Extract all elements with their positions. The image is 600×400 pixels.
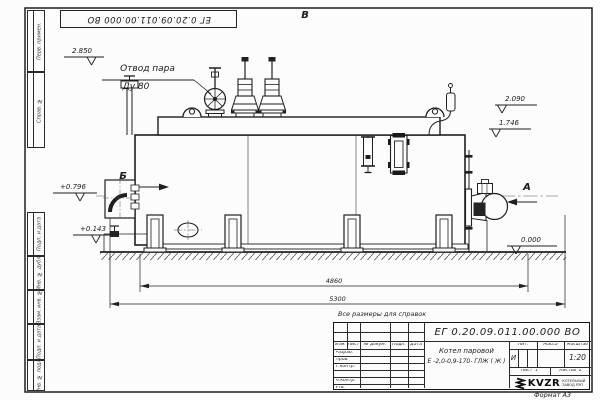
tb-sheets-value: 2 [579, 369, 582, 373]
ground-line [100, 252, 566, 260]
tb-h-podp: Подп. [390, 343, 408, 348]
safety-valve-1 [232, 57, 259, 117]
view-label-a: А [519, 183, 535, 193]
tb-h-mass: Масса [537, 343, 564, 348]
level-0143: +0.143 [71, 226, 115, 234]
margin-col-podp2: Подп. и дата [27, 324, 45, 360]
tb-sheet-label: Лист [521, 369, 532, 373]
top-stamp: ЕГ 0.20.09.011.00.000 ВО [60, 10, 237, 28]
margin-col-inv-podl: Инв. № подл. [27, 360, 45, 391]
tb-lit-value: И [509, 355, 518, 362]
steam-outlet-label-1: Отвод пара [101, 64, 194, 75]
tb-sheet: Лист 1 [509, 369, 550, 374]
margin-col-vzam: Взам. инв. № [27, 290, 45, 324]
view-arrow-a [507, 199, 537, 206]
burner [466, 180, 508, 252]
drawing-sheet: Перв. примен. Справ. № Подп. и дата Инв.… [0, 0, 600, 400]
tb-h-doc: № докум. [360, 343, 390, 348]
reference-note: Все размеры для справок [338, 310, 426, 318]
level-0796: +0.796 [51, 184, 95, 192]
tb-h-lit: Лит. [509, 343, 537, 348]
tb-h-izm: Изм. [334, 343, 347, 348]
boiler-body [135, 135, 468, 249]
margin-col-label: Подп. и дата [34, 325, 45, 359]
margin-col-inv-dubl: Инв. № дубл. [27, 256, 45, 290]
tb-row-utv: Утв. [336, 386, 361, 391]
logo-coil-icon [515, 377, 526, 390]
tb-logo-text: KVZR [528, 378, 560, 389]
margin-col-sprav: Справ. № [27, 72, 45, 148]
margin-col-label: Справ. № [34, 73, 45, 147]
tb-doc-number: ЕГ 0.20.09.011.00.000 ВО [424, 323, 591, 341]
margin-col-label: Инв. № подл. [34, 361, 45, 390]
tb-sheets: Листов 2 [550, 369, 591, 374]
margin-col-label: Перв. примен. [34, 11, 45, 71]
top-stamp-number: ЕГ 0.20.09.011.00.000 ВО [87, 14, 211, 24]
tb-row-prov: Пров. [336, 358, 361, 363]
front-door [103, 178, 139, 220]
format-note: Формат А3 [534, 391, 571, 399]
level-2090: 2.090 [495, 96, 535, 104]
view-label-b: Б [115, 172, 131, 182]
level-2850: 2.850 [62, 48, 102, 56]
margin-col-label: Инв. № дубл. [34, 257, 45, 289]
lifting-lugs [183, 108, 444, 117]
tb-row-tkontr: Т.контр. [336, 365, 361, 370]
level-1746: 1.746 [489, 120, 529, 128]
level-0000: 0.000 [507, 237, 555, 245]
steam-drum [158, 117, 440, 135]
safety-valve-2 [259, 57, 286, 117]
margin-col-label: Взам. инв. № [34, 291, 45, 323]
margin-col-perv: Перв. примен. [27, 10, 45, 72]
tb-product-line1: Котел паровой [424, 348, 509, 355]
view-label-v: В [297, 11, 313, 21]
tb-logo: KVZR КОТЕЛЬНЫЙ ЗАВОД РЭП [509, 375, 591, 391]
tb-h-data: Дата [408, 343, 424, 348]
tb-logo-subtext: КОТЕЛЬНЫЙ ЗАВОД РЭП [562, 379, 585, 387]
tb-product-line2: Е -2,0-0,9-170- ГЛЖ ( Ж ) [424, 359, 509, 365]
tb-scale-value: 1:20 [564, 354, 591, 362]
tb-row-nkontr: Н.контр. [336, 379, 361, 384]
tb-row-razrab: Разраб. [336, 351, 361, 356]
tb-sheet-value: 1 [535, 369, 538, 373]
tb-product: Котел паровой Е -2,0-0,9-170- ГЛЖ ( Ж ) [424, 341, 509, 391]
tb-sheets-label: Листов [559, 369, 576, 373]
margin-col-label: Подп. и дата [34, 213, 45, 255]
dim-4860: 4860 [304, 278, 364, 285]
title-block: Изм. Лист № докум. Подп. Дата Разраб. Пр… [333, 322, 590, 390]
steam-outlet-valve [205, 68, 226, 117]
margin-col-podp1: Подп. и дата [27, 212, 45, 256]
tb-h-list: Лист [347, 343, 360, 348]
tb-logo-sub2: ЗАВОД РЭП [562, 383, 585, 387]
steam-outlet-label-2: Ду 80 [101, 82, 171, 93]
tb-h-scale: Масштаб [564, 343, 591, 348]
dim-5300: 5300 [305, 296, 370, 303]
